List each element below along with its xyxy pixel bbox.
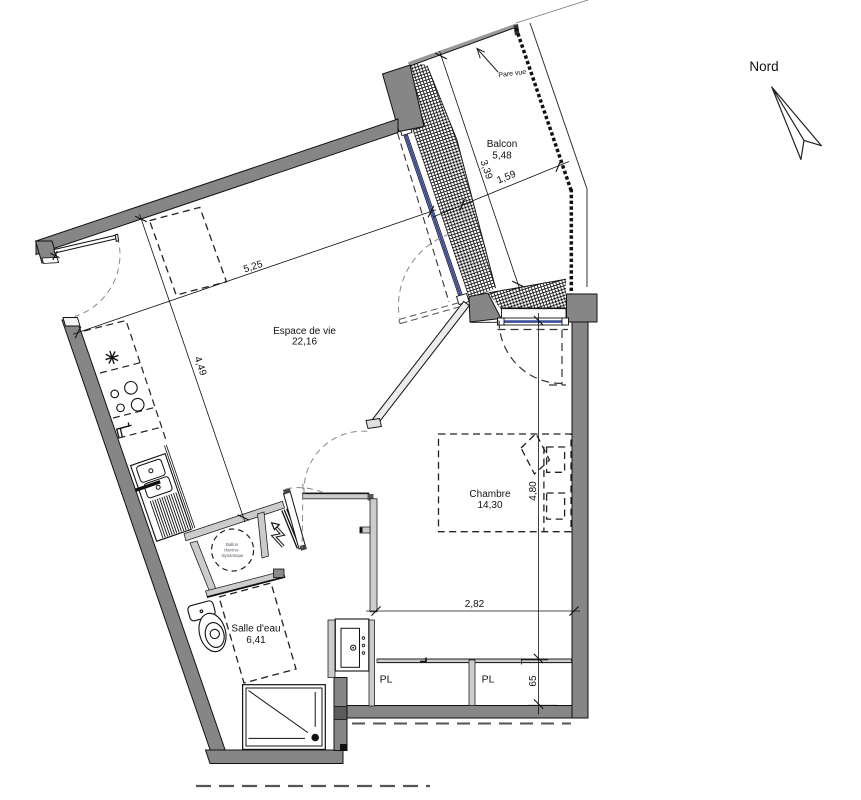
svg-text:14,30: 14,30 (477, 500, 502, 511)
svg-text:2,82: 2,82 (465, 599, 485, 610)
svg-text:PL: PL (482, 674, 495, 686)
svg-text:-dynamique: -dynamique (221, 553, 244, 558)
svg-text:Salle d'eau: Salle d'eau (231, 624, 280, 635)
svg-text:22,16: 22,16 (292, 337, 317, 348)
svg-text:PL: PL (380, 674, 393, 686)
svg-text:Balcon: Balcon (487, 139, 518, 150)
svg-text:4,80: 4,80 (528, 481, 539, 501)
svg-text:Chambre: Chambre (469, 489, 511, 500)
svg-text:Ballon: Ballon (226, 542, 239, 547)
svg-text:65: 65 (528, 675, 539, 687)
svg-text:Nord: Nord (749, 59, 778, 74)
svg-text:5,48: 5,48 (492, 151, 512, 162)
svg-text:thermo-: thermo- (224, 548, 240, 553)
svg-text:Espace de vie: Espace de vie (273, 326, 336, 337)
svg-text:6,41: 6,41 (246, 635, 266, 646)
